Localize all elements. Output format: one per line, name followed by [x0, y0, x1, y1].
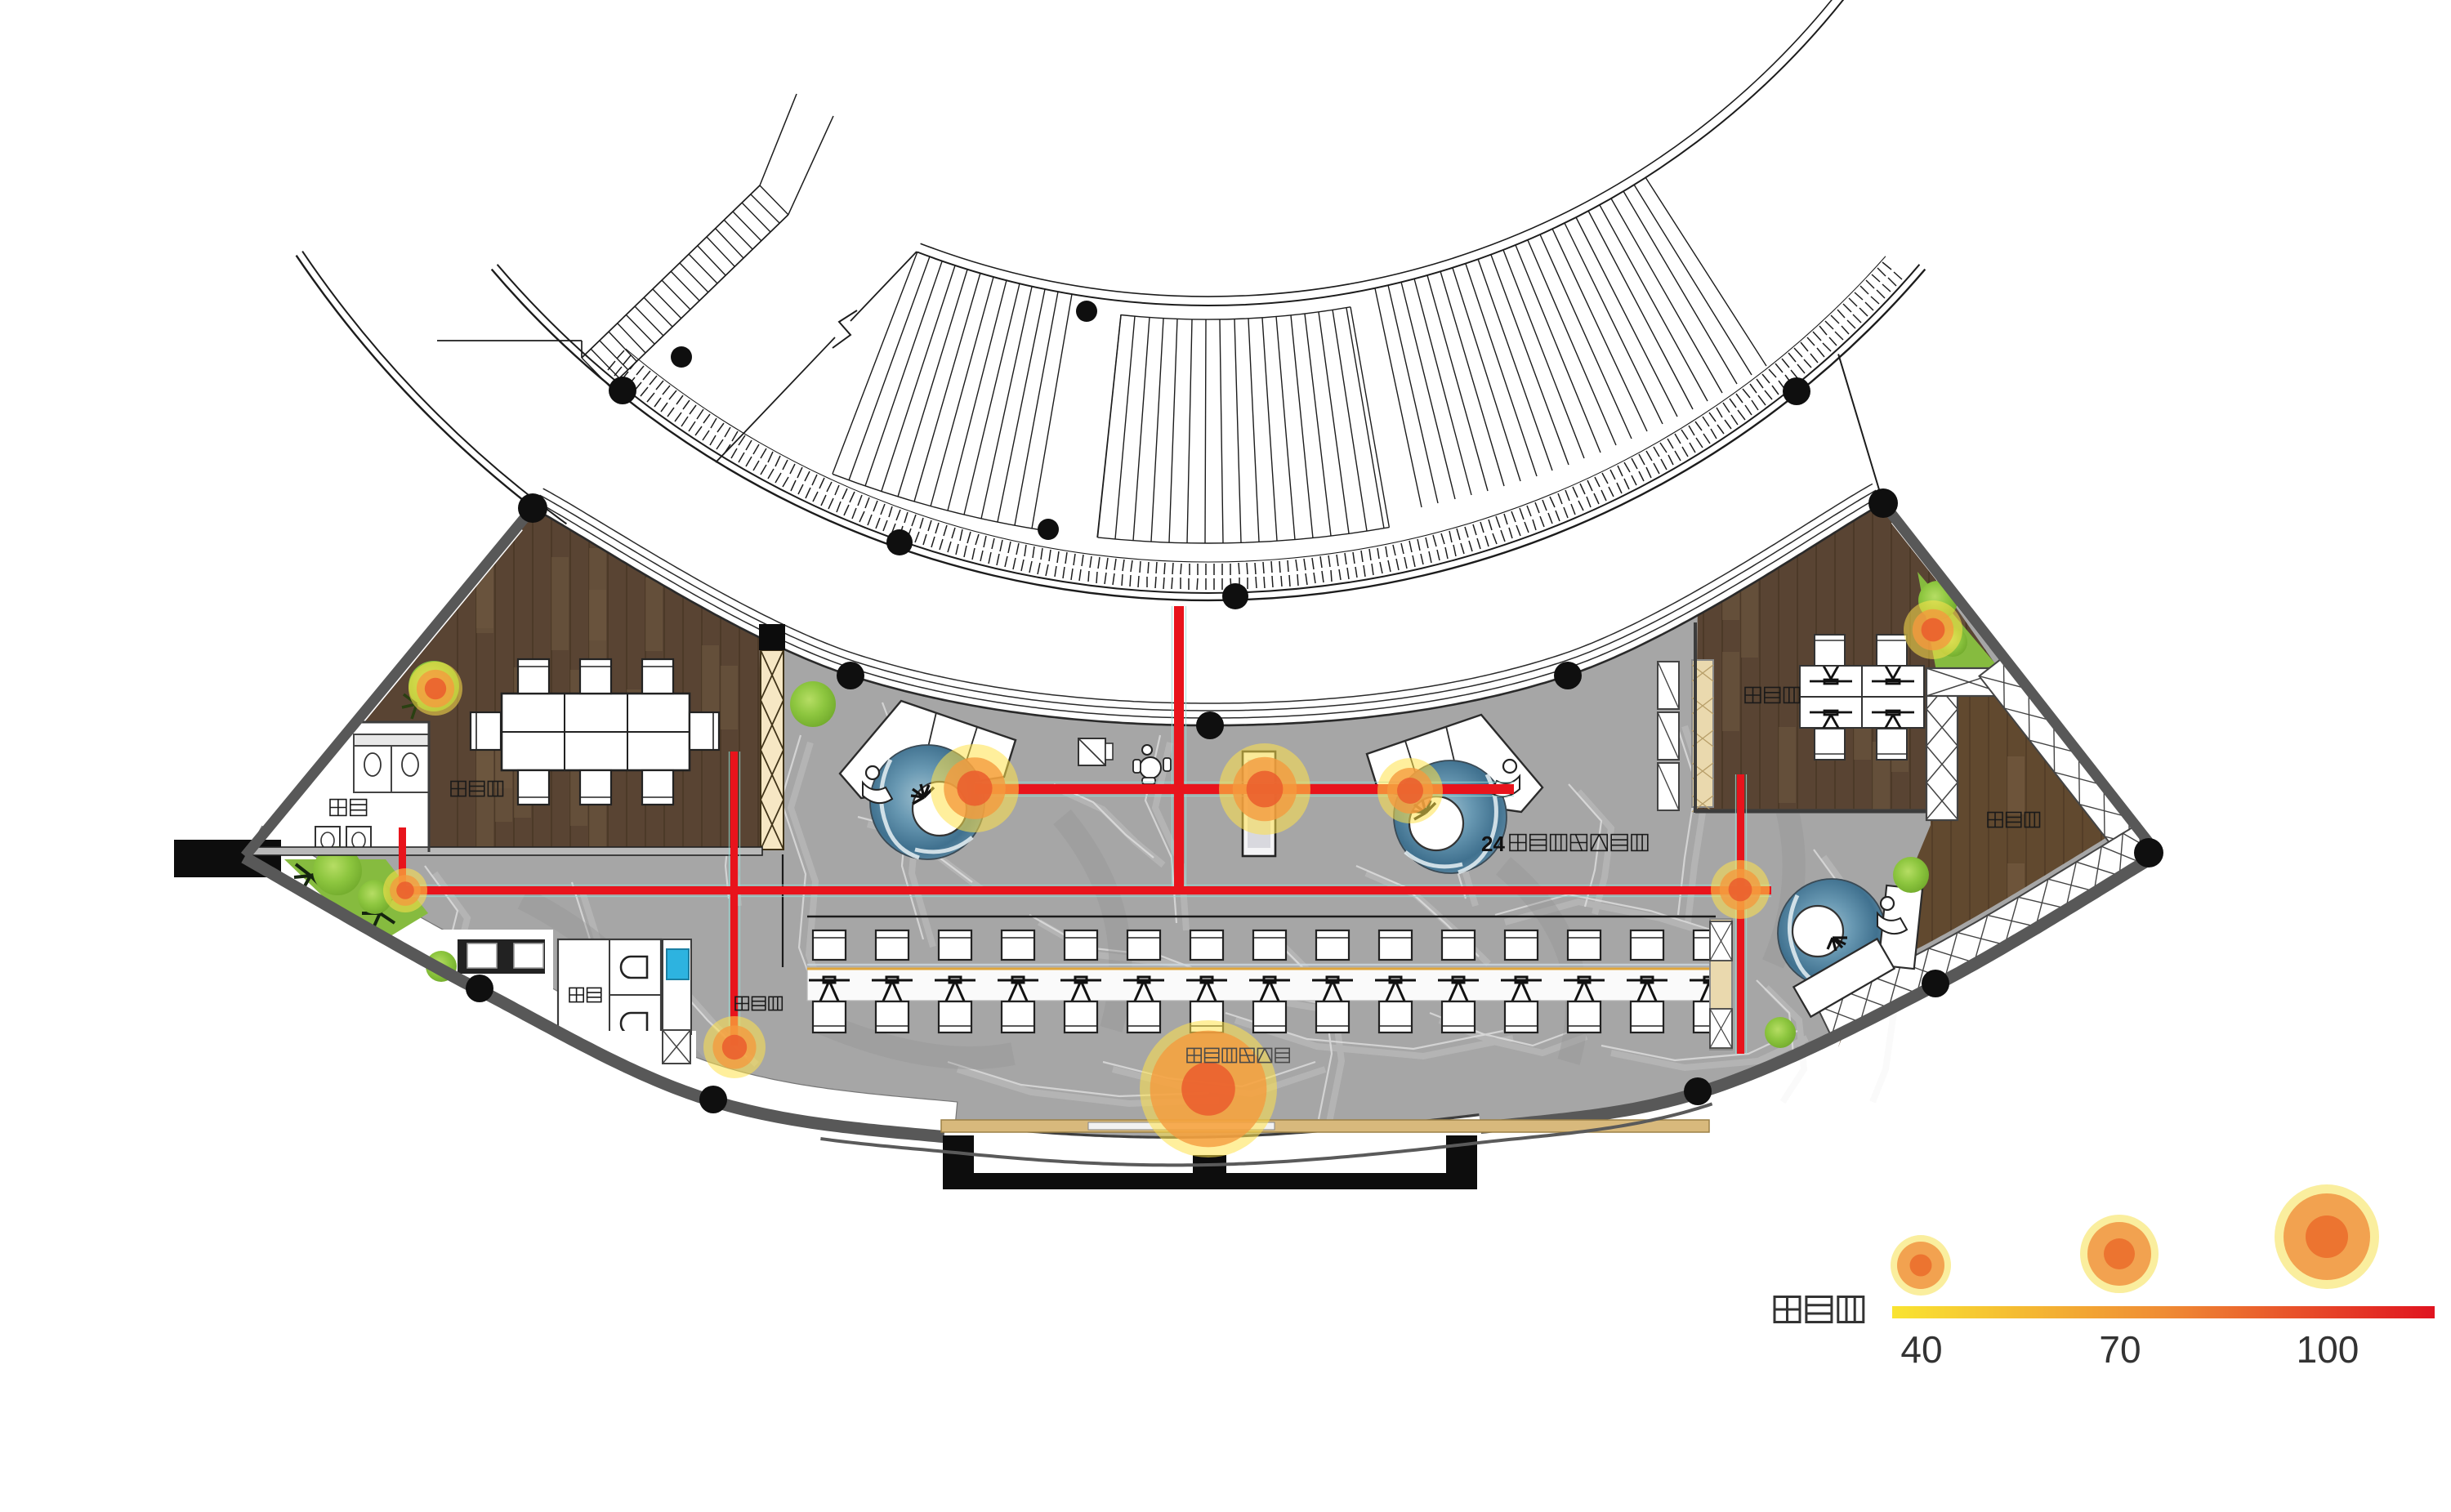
svg-text:24: 24: [1481, 832, 1505, 856]
svg-text:40: 40: [1900, 1328, 1942, 1371]
svg-text:70: 70: [2099, 1328, 2141, 1371]
svg-text:100: 100: [2297, 1328, 2359, 1371]
